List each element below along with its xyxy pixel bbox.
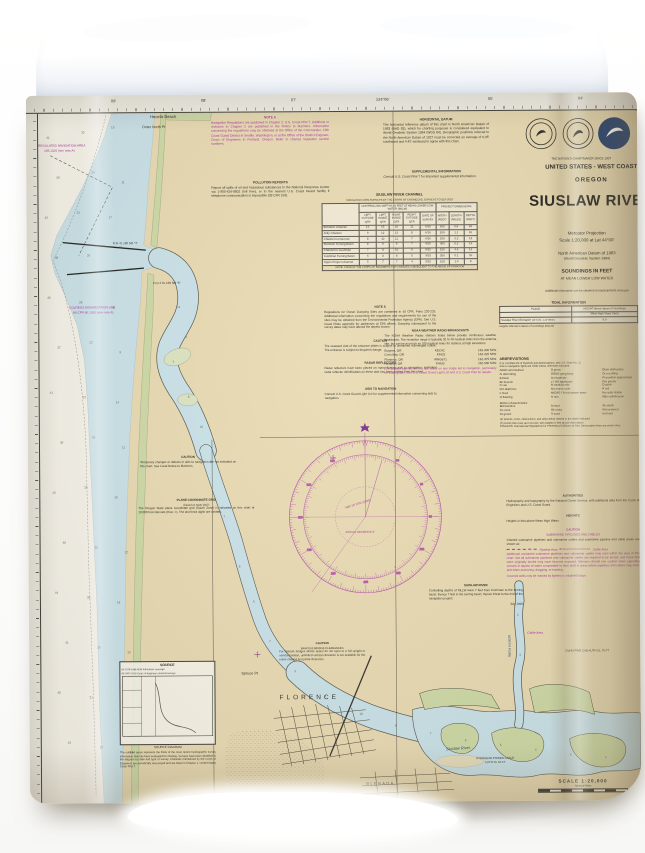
map-label: Heceta Beach	[150, 114, 176, 119]
depth-sounding: 37	[57, 346, 60, 350]
depth-sounding: 26	[87, 253, 90, 257]
abbr-entry: N nun	[551, 395, 598, 399]
horizontal-datum: HORIZONTAL DATUM The horizontal referenc…	[383, 117, 489, 146]
depth-sounding: 41	[46, 136, 49, 140]
svg-text:150: 150	[396, 571, 401, 575]
depth-sounding: 31	[90, 695, 93, 699]
depth-sounding: 39	[60, 441, 63, 445]
map-label: 165.1325 (see note A)	[44, 149, 74, 153]
tidal-row: Siuslaw River Entrance (44°01'N., 124°08…	[500, 317, 638, 324]
depth-sounding: 2	[517, 613, 519, 617]
svg-text:330: 330	[330, 459, 335, 463]
longitude-tick: 05'	[488, 96, 493, 101]
depth-sounding: 42	[45, 216, 48, 220]
depth-sounding: 12	[125, 550, 128, 554]
depth-sounding: 4	[605, 755, 607, 759]
longitude-tick: 07'	[291, 97, 296, 102]
tidal-information: TIDAL INFORMATION PLACE HEIGHT above dat…	[499, 300, 638, 328]
chartmaker-tagline: THE NATION'S CHARTMAKER SINCE 1807	[506, 156, 641, 161]
depth-sounding: 11	[121, 180, 124, 184]
depth-sounding: 31	[77, 211, 80, 215]
depth-sounding: 45	[57, 691, 60, 695]
depth-sounding: 9	[185, 335, 187, 339]
scale-block: SCALE 1:20,000 Nautical Miles	[538, 778, 628, 793]
map-label: FLORENCE	[280, 694, 339, 701]
abbr-entry: Fl flashing	[500, 395, 547, 399]
depth-sounding: 5	[500, 743, 502, 747]
abbr-entry: Gr gravel	[500, 412, 547, 416]
plane-coordinate-grid: PLANE COORDINATE GRID (based on NAD 1927…	[138, 498, 254, 517]
depth-sounding: 22	[89, 340, 92, 344]
chart-datum2: (World Geodetic System 1984)	[507, 256, 641, 261]
noaa-logo-icon	[598, 117, 630, 149]
depth-sounding: 26	[97, 645, 100, 649]
depth-sounding: 5	[570, 753, 572, 757]
map-label: AUTH CL 66 FT	[485, 760, 506, 764]
depth-sounding: 7	[172, 360, 174, 364]
depth-sounding: 39	[56, 176, 59, 180]
svg-text:300: 300	[307, 483, 312, 487]
depth-sounding: 27	[83, 396, 86, 400]
chart-soundings: SOUNDINGS IN FEET	[507, 268, 641, 275]
prudent-mariner-warning: The prudent mariner will not rely solely…	[385, 367, 497, 375]
depth-sounding: 9	[294, 669, 296, 673]
depth-sounding: 6	[465, 738, 467, 742]
source-diagram: SOURCE S4 1979-1986 NOS full-bottom cove…	[119, 661, 216, 771]
map-label: OVHD PWR CAB AUTH CL 75 FT	[565, 648, 609, 652]
chart-info-line: Additional information can be obtained a…	[505, 288, 641, 293]
pipeline-symbol-icon	[507, 549, 537, 550]
pipelines-caution: CAUTION SUBMARINE PIPELINES AND CABLES C…	[506, 528, 639, 581]
chart-scale: Scale 1:20,000 at Lat 44°00'	[507, 237, 641, 243]
longitude-tick: 09'	[111, 98, 116, 103]
map-label: COLREGS DEMARCATION LINE	[69, 305, 115, 309]
duvet-cover: 09'08'07'124°06'05'04'	[26, 92, 641, 804]
depth-sounding: 17	[109, 215, 112, 219]
depth-sounding: 40	[47, 296, 50, 300]
table-footnote: NOTE: CONSULT THE CORPS OF ENGINEERS FOR…	[322, 265, 478, 271]
depth-sounding: 11	[177, 305, 180, 309]
depth-sounding: 24	[91, 170, 94, 174]
abbr-entry: S sand	[551, 412, 598, 416]
depth-sounding: 13	[127, 650, 130, 654]
depth-sounding: 6	[253, 599, 255, 603]
pollution-reports: POLLUTION REPORTS Report all spills of o…	[211, 180, 329, 200]
map-label: ANNUAL DECREASE 8'	[346, 531, 375, 534]
chart-soundings2: AT MEAN LOWER LOW WATER	[507, 276, 641, 281]
chart-region: UNITED STATES - WEST COAST	[506, 164, 641, 171]
depth-sounding: 38	[55, 256, 58, 260]
source-diagram-graphic	[121, 674, 213, 737]
note-a: NOTE A Navigation Regulations are publis…	[211, 115, 329, 148]
weather-station-row: Newport, OR KIH33 162.550 MHz	[384, 361, 496, 366]
svg-text:180: 180	[364, 580, 369, 584]
tidal-table: PLACE HEIGHT above datum of soundings Me…	[499, 306, 638, 325]
depth-sounding: 13	[119, 245, 122, 249]
chart-state: OREGON	[506, 177, 641, 184]
abbreviations: ABBREVIATIONS (For complete list of Symb…	[499, 356, 641, 428]
svg-text:240: 240	[307, 548, 312, 552]
depth-sounding: 24	[92, 435, 95, 439]
depth-sounding: 29	[84, 486, 87, 490]
depth-sounding: 4	[535, 748, 537, 752]
product-photo: 09'08'07'124°06'05'04'	[0, 0, 645, 853]
depth-sounding: 16	[117, 600, 120, 604]
depth-sounding: 30	[81, 131, 84, 135]
depth-sounding: 27	[100, 745, 103, 749]
heights: HEIGHTS Heights in feet above Mean High …	[506, 514, 639, 526]
depth-sounding: 8	[239, 565, 241, 569]
depth-sounding: 7	[269, 639, 271, 643]
depth-sounding: 9	[119, 350, 121, 354]
map-label: GLENADA	[366, 782, 395, 786]
chart-projection: Mercator Projection	[507, 230, 641, 236]
depth-sounding: 10	[200, 425, 203, 429]
authorities: AUTHORITIES Hydrography and topography b…	[506, 494, 639, 509]
map-label: REGULATED NAVIGATION AREA	[38, 144, 85, 148]
depth-sounding: 9	[395, 724, 397, 728]
nos-seal-icon	[563, 118, 593, 148]
depth-sounding: 14	[116, 400, 119, 404]
longitude-tick: 124°06'	[376, 97, 390, 102]
weather-broadcasts: NOAA WEATHER RADIO BROADCASTS The NOAA W…	[384, 329, 496, 378]
commerce-seal-icon	[526, 119, 556, 149]
depth-sounding: 10	[360, 712, 363, 716]
depth-sounding: 28	[79, 301, 82, 305]
agency-seals	[524, 116, 634, 160]
caution-temporary: CAUTION Temporary changes or defects in …	[140, 456, 236, 471]
map-label: Outer North Pt	[142, 125, 165, 129]
depth-sounding: 42	[68, 741, 71, 745]
depth-sounding: 7	[430, 731, 432, 735]
depth-sounding: 44	[55, 591, 58, 595]
depth-sounding: 40	[63, 541, 66, 545]
siuslaw-depths-note: SIUSLAW RIVER Controlling depths of MLLW…	[429, 584, 523, 607]
abbr-entry: RBn radiobeacon	[602, 395, 641, 399]
depth-sounding: 11	[122, 445, 125, 449]
channel-depth-table: SIUSLAW RIVER CHANNEL TABULATED FROM SUR…	[321, 192, 477, 271]
aids-to-navigation: AIDS TO NAVIGATION Consult U.S. Coast Gu…	[325, 387, 437, 402]
map-label: 80 CFR 80.1305 (see note A)	[73, 310, 113, 314]
supplemental-info: SUPPLEMENTAL INFORMATION Consult U.S. Co…	[383, 169, 489, 181]
chart-datum: North American Datum of 1983	[507, 250, 641, 256]
depth-sounding: 15	[114, 495, 117, 499]
depth-sounding: 43	[52, 491, 55, 495]
caution-bascule: CAUTION BASCULE BRIDGE CLEARANCES For ba…	[279, 642, 365, 664]
longitude-tick: 08'	[201, 98, 206, 103]
map-label: Cable Area	[527, 631, 543, 635]
chart-top-margin: 09'08'07'124°06'05'04'	[26, 92, 637, 114]
depth-sounding: 41	[65, 641, 68, 645]
map-label: Fl G 2.5s 15ft 5M "5"	[153, 281, 181, 285]
abbr-entry: hrd hard	[602, 412, 641, 416]
depth-sounding: 3	[519, 653, 521, 657]
map-label: NORTH FORK	[507, 635, 511, 657]
depth-sounding: 15	[111, 125, 114, 129]
scale-bar	[538, 789, 628, 794]
depth-sounding: 25	[95, 545, 98, 549]
longitude-tick: 04'	[578, 95, 583, 100]
map-label: Spruce Pt	[241, 671, 258, 675]
map-label: Fl R 4s 16ft 5M "4"	[113, 241, 138, 245]
cable-symbol-icon	[560, 549, 590, 550]
depth-sounding: 41	[50, 391, 53, 395]
note-a-title: NOTE A	[211, 115, 329, 120]
chart-title: SIUSLAW RIVER	[496, 192, 641, 210]
depth-sounding: 30	[87, 595, 90, 599]
svg-text:120: 120	[420, 547, 425, 551]
svg-text:210: 210	[331, 571, 336, 575]
depth-sounding: 8	[188, 395, 190, 399]
